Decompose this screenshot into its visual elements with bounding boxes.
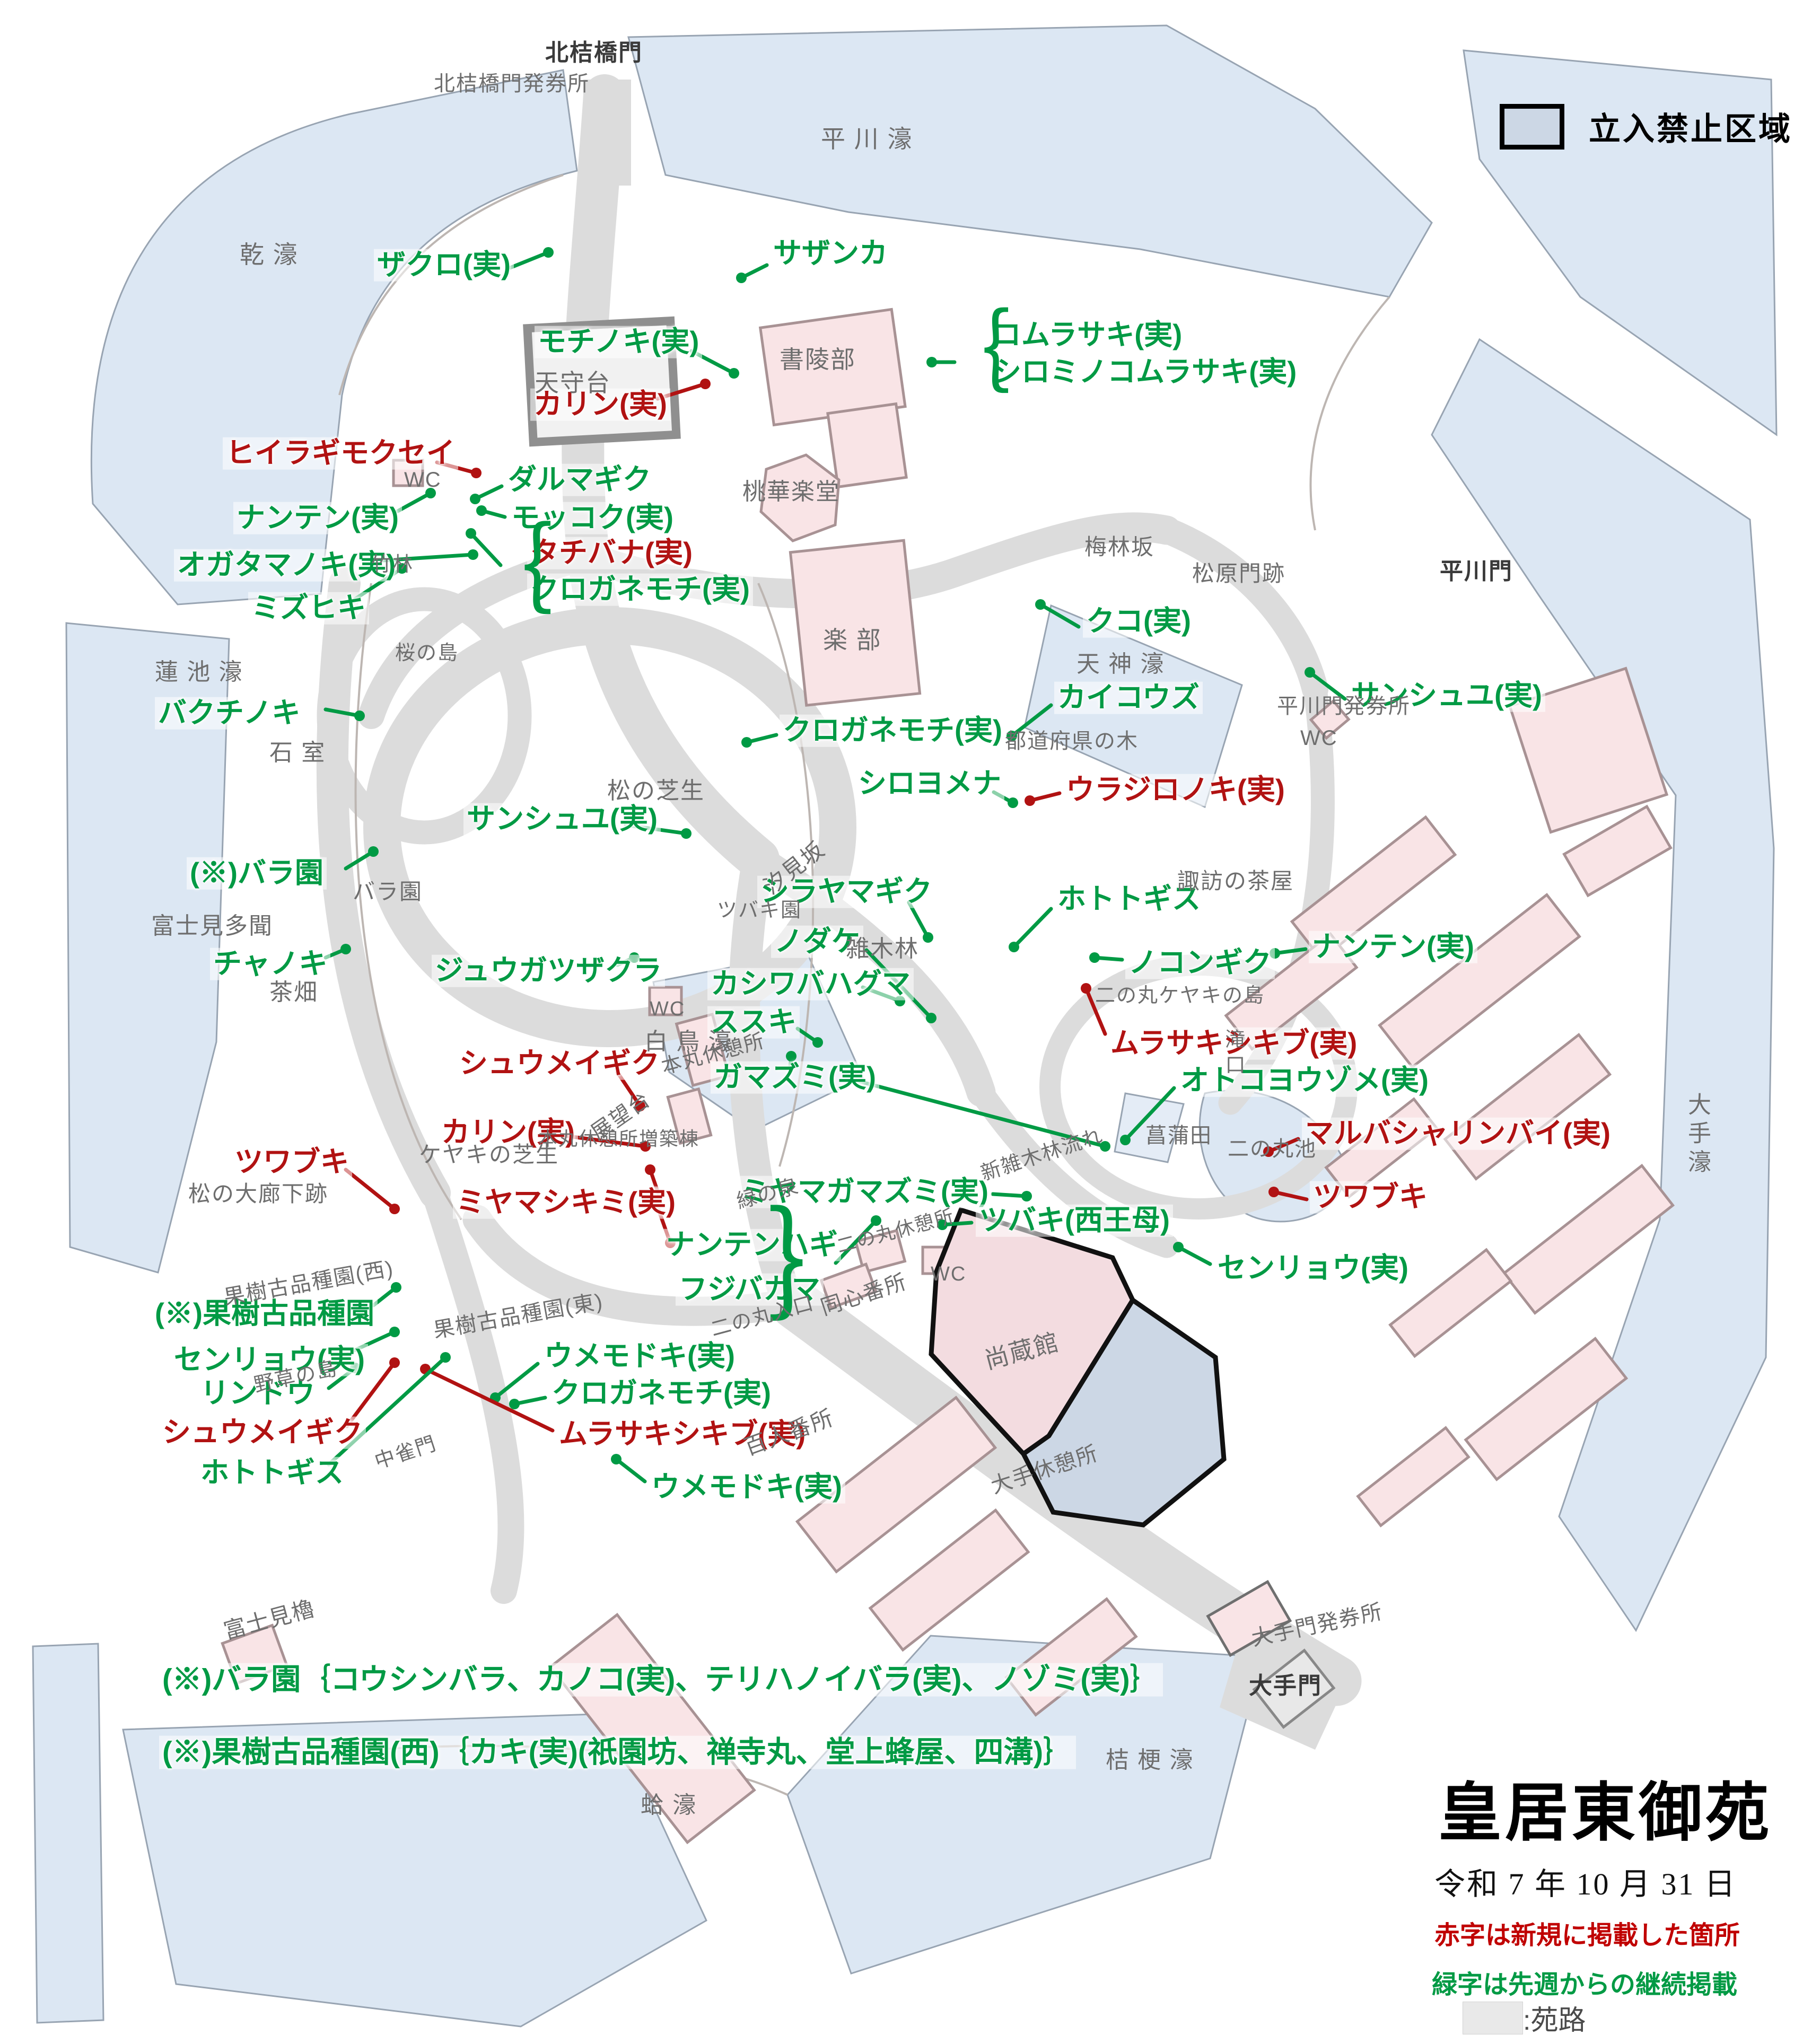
plant-label-new: シュウメイギク	[456, 1048, 663, 1080]
label-bracket: ｛	[921, 309, 1011, 399]
plant-label-continuing: ナンテン(実)	[233, 502, 402, 534]
leader-dot	[1120, 1135, 1131, 1145]
path-label: :苑路	[1523, 1998, 1586, 2038]
leader-dot	[1081, 983, 1091, 994]
plant-label-new: マルバシャリンバイ(実)	[1302, 1118, 1614, 1150]
map-place-label: 松の大廊下跡	[188, 1183, 328, 1205]
map-date: 令和 7 年 10 月 31 日	[1434, 1859, 1737, 1903]
leader-dot	[611, 1454, 622, 1464]
map-place-label: 大手門	[1249, 1674, 1322, 1698]
leader-dot	[645, 1164, 655, 1175]
map-place-label: 平川門	[1440, 560, 1513, 583]
map-place-label: 北桔橋門	[545, 41, 643, 65]
map-place-label: 平 川 濠	[821, 127, 913, 151]
leader-dot	[681, 828, 692, 839]
map-place-label: WC	[1300, 727, 1338, 749]
plant-label-continuing: カシワバハグマ	[707, 968, 914, 1001]
map-place-label: 松の芝生	[607, 779, 705, 803]
plant-label-new: ミヤマシキミ(実)	[453, 1187, 679, 1219]
leader-dot	[1035, 599, 1046, 610]
map-place-label: WC	[650, 999, 685, 1019]
plant-label-continuing: クロガネモチ(実)	[780, 715, 1005, 747]
plant-label-continuing: ツバキ(西王母)	[976, 1205, 1173, 1237]
page-title: 皇居東御苑	[1438, 1761, 1772, 1853]
leader-dot	[391, 1282, 401, 1293]
leader-dot	[509, 1399, 520, 1409]
plant-label-new: ウラジロノキ(実)	[1063, 774, 1288, 806]
leader-dot	[368, 846, 379, 857]
plant-label-new: ヒイラギモクセイ	[223, 437, 458, 470]
plant-label-new: ツワブキ	[1310, 1181, 1431, 1214]
leader-dot	[470, 494, 480, 504]
plant-label-continuing: サザンカ	[770, 238, 891, 270]
map-place-label: 竹林	[371, 555, 414, 575]
map-place-label: 二の丸ケヤキの島	[1095, 986, 1265, 1006]
leader-dot	[1173, 1242, 1184, 1252]
leader-dot	[1305, 667, 1315, 678]
leader-line	[1040, 604, 1079, 627]
leader-dot	[729, 368, 739, 379]
map-place-label: 茶畑	[269, 981, 318, 1004]
map-place-label: 富士見多聞	[151, 915, 273, 938]
map-place-label: 桔 梗 濠	[1106, 1749, 1194, 1772]
leader-dot	[389, 1204, 400, 1214]
map-place-label: 二の丸池	[1228, 1138, 1317, 1160]
restricted-area-label: 立入禁止区域	[1589, 103, 1792, 150]
map-place-label: 菖蒲田	[1145, 1125, 1212, 1146]
legend-path: :苑路	[1463, 1998, 1586, 2038]
map-place-label: 諏訪の茶屋	[1177, 870, 1294, 892]
plant-label-continuing: サンシュユ(実)	[463, 803, 661, 836]
map-place-label: 松原門跡	[1192, 563, 1285, 585]
map-place-label: 桜の島	[395, 643, 459, 663]
map-place-label: 乾 濠	[240, 242, 299, 267]
map-place-label: 滝口	[1223, 1029, 1243, 1080]
map-place-label: 都道府県の木	[1005, 731, 1139, 752]
restricted-area-swatch	[1500, 104, 1564, 150]
path-swatch	[1463, 2002, 1523, 2034]
map-place-label: 蓮 池 濠	[155, 661, 243, 684]
leader-dot	[786, 1051, 797, 1062]
plant-label-continuing: ザクロ(実)	[374, 249, 514, 282]
leader-dot	[1008, 797, 1018, 808]
plant-label-continuing: カイコウズ	[1054, 682, 1203, 714]
plant-label-continuing: クロガネモチ(実)	[548, 1378, 774, 1410]
map-place-label: 蛤 濠	[641, 1794, 697, 1817]
plant-label-continuing: シロヨメナ	[855, 768, 1004, 800]
leader-dot	[471, 468, 482, 478]
leader-dot	[1009, 942, 1019, 952]
map-place-label: ツバキ園	[717, 900, 802, 920]
map-place-label: WC	[931, 1264, 966, 1284]
plant-label-continuing: ガマズミ(実)	[711, 1062, 879, 1094]
note-continuing-green: 緑字は先週からの継続掲載	[1432, 1963, 1737, 2001]
leader-line	[1014, 909, 1051, 947]
plant-label-continuing: ミズヒキ	[248, 592, 369, 625]
leader-dot	[1089, 952, 1100, 963]
leader-line	[495, 1364, 538, 1398]
garden-map: 立入禁止区域 皇居東御苑 令和 7 年 10 月 31 日 赤字は新規に掲載した…	[0, 0, 1803, 2044]
leader-dot	[812, 1037, 823, 1048]
map-place-label: 大手濠	[1685, 1092, 1709, 1178]
plant-label-continuing: シロミノコムラサキ(実)	[990, 356, 1300, 389]
plant-label-continuing: センリョウ(実)	[1214, 1252, 1412, 1285]
plant-label-continuing: (※)バラ園｛コウシンバラ、カノコ(実)、テリハノイバラ(実)、ノゾミ(実)｝	[159, 1663, 1163, 1697]
plant-label-continuing: ウメモドキ(実)	[541, 1340, 738, 1373]
plant-label-new: ツワブキ	[231, 1146, 352, 1179]
leader-dot	[440, 1352, 451, 1363]
leader-dot	[700, 379, 711, 389]
plant-label-continuing: オトコヨウゾメ(実)	[1177, 1065, 1432, 1097]
map-place-label: 北桔橋門発券所	[434, 73, 590, 94]
map-place-label: WC	[404, 469, 442, 490]
plant-label-continuing: モチノキ(実)	[535, 326, 702, 358]
label-bracket: ｛	[456, 523, 554, 621]
leader-dot	[354, 710, 365, 721]
leader-line	[346, 1170, 395, 1209]
map-place-label: 楽 部	[823, 628, 882, 652]
leader-dot	[476, 505, 487, 516]
map-place-label: 書陵部	[780, 347, 856, 372]
plant-label-continuing: (※)バラ園	[187, 857, 327, 890]
leader-dot	[741, 737, 752, 748]
plant-label-continuing: ジュウガツザクラ	[432, 955, 665, 987]
leader-dot	[1025, 795, 1035, 806]
plant-label-continuing: (※)果樹古品種園(西)｛カキ(実)(祇園坊、禅寺丸、堂上蜂屋、四溝)｝	[159, 1736, 1076, 1769]
map-place-label: 天守台	[535, 371, 611, 395]
plant-label-continuing: ホトトギス	[197, 1457, 347, 1489]
plant-label-continuing: ウメモドキ(実)	[648, 1471, 845, 1504]
leader-dot	[736, 273, 747, 283]
note-new-red: 赤字は新規に掲載した箇所	[1434, 1914, 1740, 1951]
leader-line	[398, 493, 431, 511]
plant-label-continuing: オガタマノキ(実)	[174, 549, 399, 582]
leader-dot	[340, 944, 351, 954]
leader-dot	[543, 247, 554, 258]
map-place-label: バラ園	[353, 881, 423, 903]
plant-label-continuing: ナンテン(実)	[1309, 931, 1477, 963]
leader-line	[510, 252, 548, 268]
plant-label-new: シュウメイギク	[159, 1417, 366, 1449]
leader-dot	[389, 1327, 400, 1337]
plant-label-continuing: クロガネモチ(実)	[527, 574, 753, 606]
map-place-label: 石 室	[269, 741, 326, 765]
map-place-label: ケヤキの芝生	[419, 1144, 559, 1166]
plant-label-continuing: ノコンギク	[1125, 947, 1275, 979]
map-place-label: 雑木林	[846, 937, 919, 961]
map-place-label: 平川門発券所	[1277, 696, 1411, 717]
map-place-label: 桃華楽堂	[742, 480, 840, 504]
map-place-label: 本丸休憩所増築棟	[538, 1129, 699, 1148]
plant-label-continuing: コムラサキ(実)	[990, 319, 1185, 352]
map-place-label: 天 神 濠	[1076, 653, 1165, 676]
leader-line	[616, 1459, 645, 1481]
leader-dot	[926, 1013, 936, 1023]
leader-dot	[389, 1357, 400, 1368]
plant-label-continuing: バクチノキ	[155, 697, 303, 730]
plant-label-continuing: クコ(実)	[1083, 606, 1194, 638]
leader-dot	[1021, 1191, 1032, 1201]
leader-dot	[923, 932, 933, 943]
leader-dot	[1268, 1187, 1279, 1197]
map-place-label: 梅林坂	[1084, 536, 1154, 558]
leader-line	[1178, 1247, 1210, 1264]
legend-restricted: 立入禁止区域	[1500, 103, 1792, 150]
plant-label-continuing: ダルマギク	[505, 464, 654, 496]
plant-label-continuing: チャノキ	[210, 948, 330, 980]
